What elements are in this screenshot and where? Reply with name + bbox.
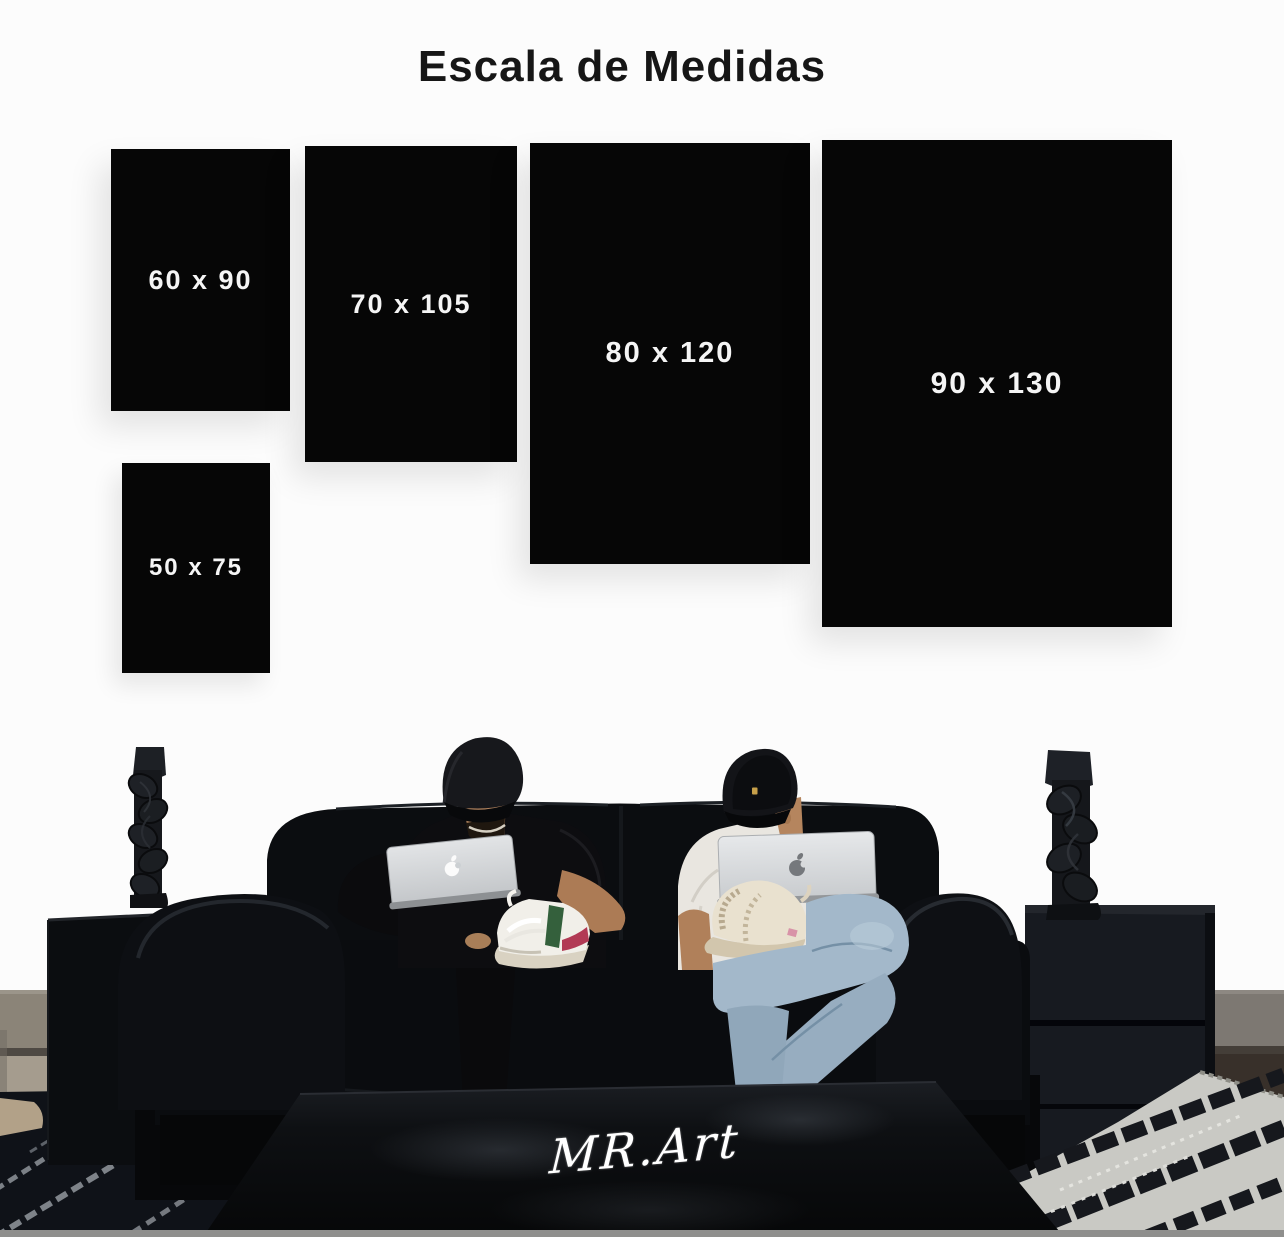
- bottom-edge-strip: [0, 1230, 1284, 1237]
- size-scale-poster: Escala de Medidas 60 x 90 70 x 105 80 x …: [0, 0, 1284, 1237]
- cap-shield-logo: [752, 787, 759, 795]
- cap-left: [443, 737, 524, 822]
- lifestyle-photo-scene: [0, 0, 1284, 1237]
- pillar-right: [1042, 750, 1102, 920]
- forearm: [678, 909, 713, 970]
- pillar-left: [125, 747, 172, 908]
- ripped-knee-skin: [465, 933, 491, 949]
